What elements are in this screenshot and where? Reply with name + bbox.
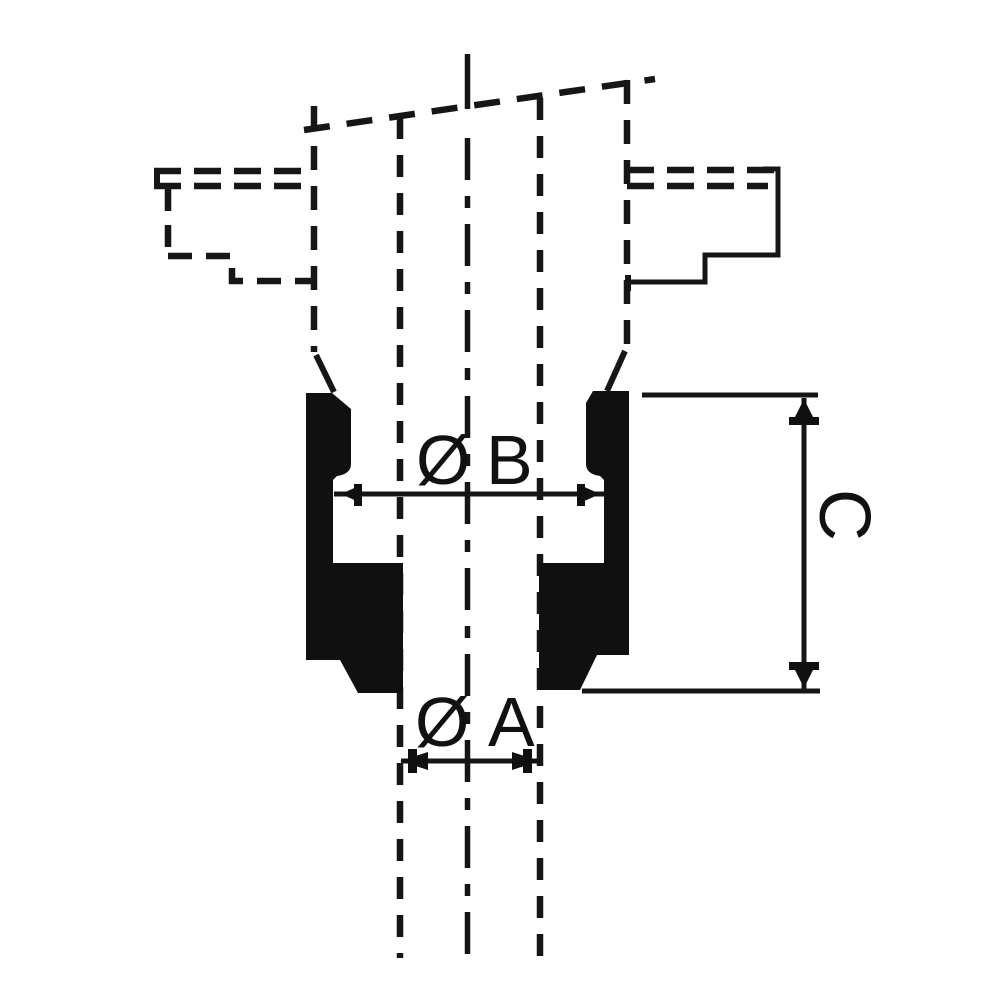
svg-text:Ø: Ø (416, 421, 470, 499)
svg-text:Ø: Ø (415, 683, 469, 761)
svg-text:C: C (804, 489, 884, 541)
svg-text:B: B (486, 421, 533, 499)
svg-text:A: A (488, 683, 535, 761)
